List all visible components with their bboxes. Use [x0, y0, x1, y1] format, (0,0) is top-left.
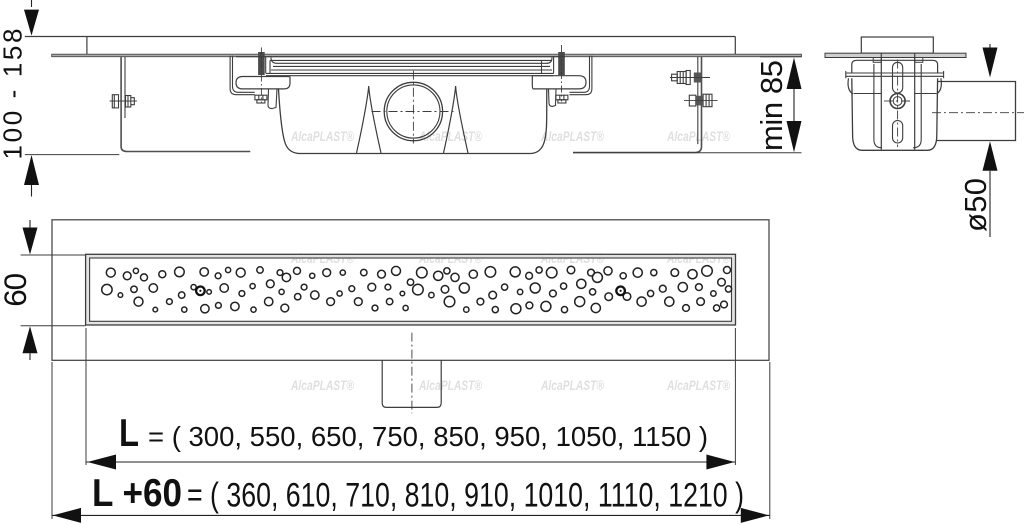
svg-text:AlcaPLAST®: AlcaPLAST® — [418, 377, 482, 393]
svg-text:= ( 360, 610, 710, 810, 910, 1: = ( 360, 610, 710, 810, 910, 1010, 1110,… — [187, 477, 744, 515]
svg-text:AlcaPLAST®: AlcaPLAST® — [418, 128, 482, 144]
svg-text:AlcaPLAST®: AlcaPLAST® — [290, 377, 354, 393]
svg-text:AlcaPLAST®: AlcaPLAST® — [290, 128, 354, 144]
svg-text:= ( 300, 550, 650, 750, 850, 9: = ( 300, 550, 650, 750, 850, 950, 1050, … — [148, 421, 708, 452]
svg-text:ø50: ø50 — [958, 178, 993, 232]
svg-text:AlcaPLAST®: AlcaPLAST® — [540, 377, 604, 393]
svg-text:L +60: L +60 — [92, 472, 182, 515]
svg-text:min 85: min 85 — [754, 60, 789, 151]
svg-text:100 - 158: 100 - 158 — [0, 29, 28, 160]
svg-text:AlcaPLAST®: AlcaPLAST® — [540, 128, 604, 144]
svg-text:60: 60 — [0, 273, 33, 307]
svg-text:L: L — [119, 412, 139, 455]
svg-text:AlcaPLAST®: AlcaPLAST® — [666, 377, 730, 393]
